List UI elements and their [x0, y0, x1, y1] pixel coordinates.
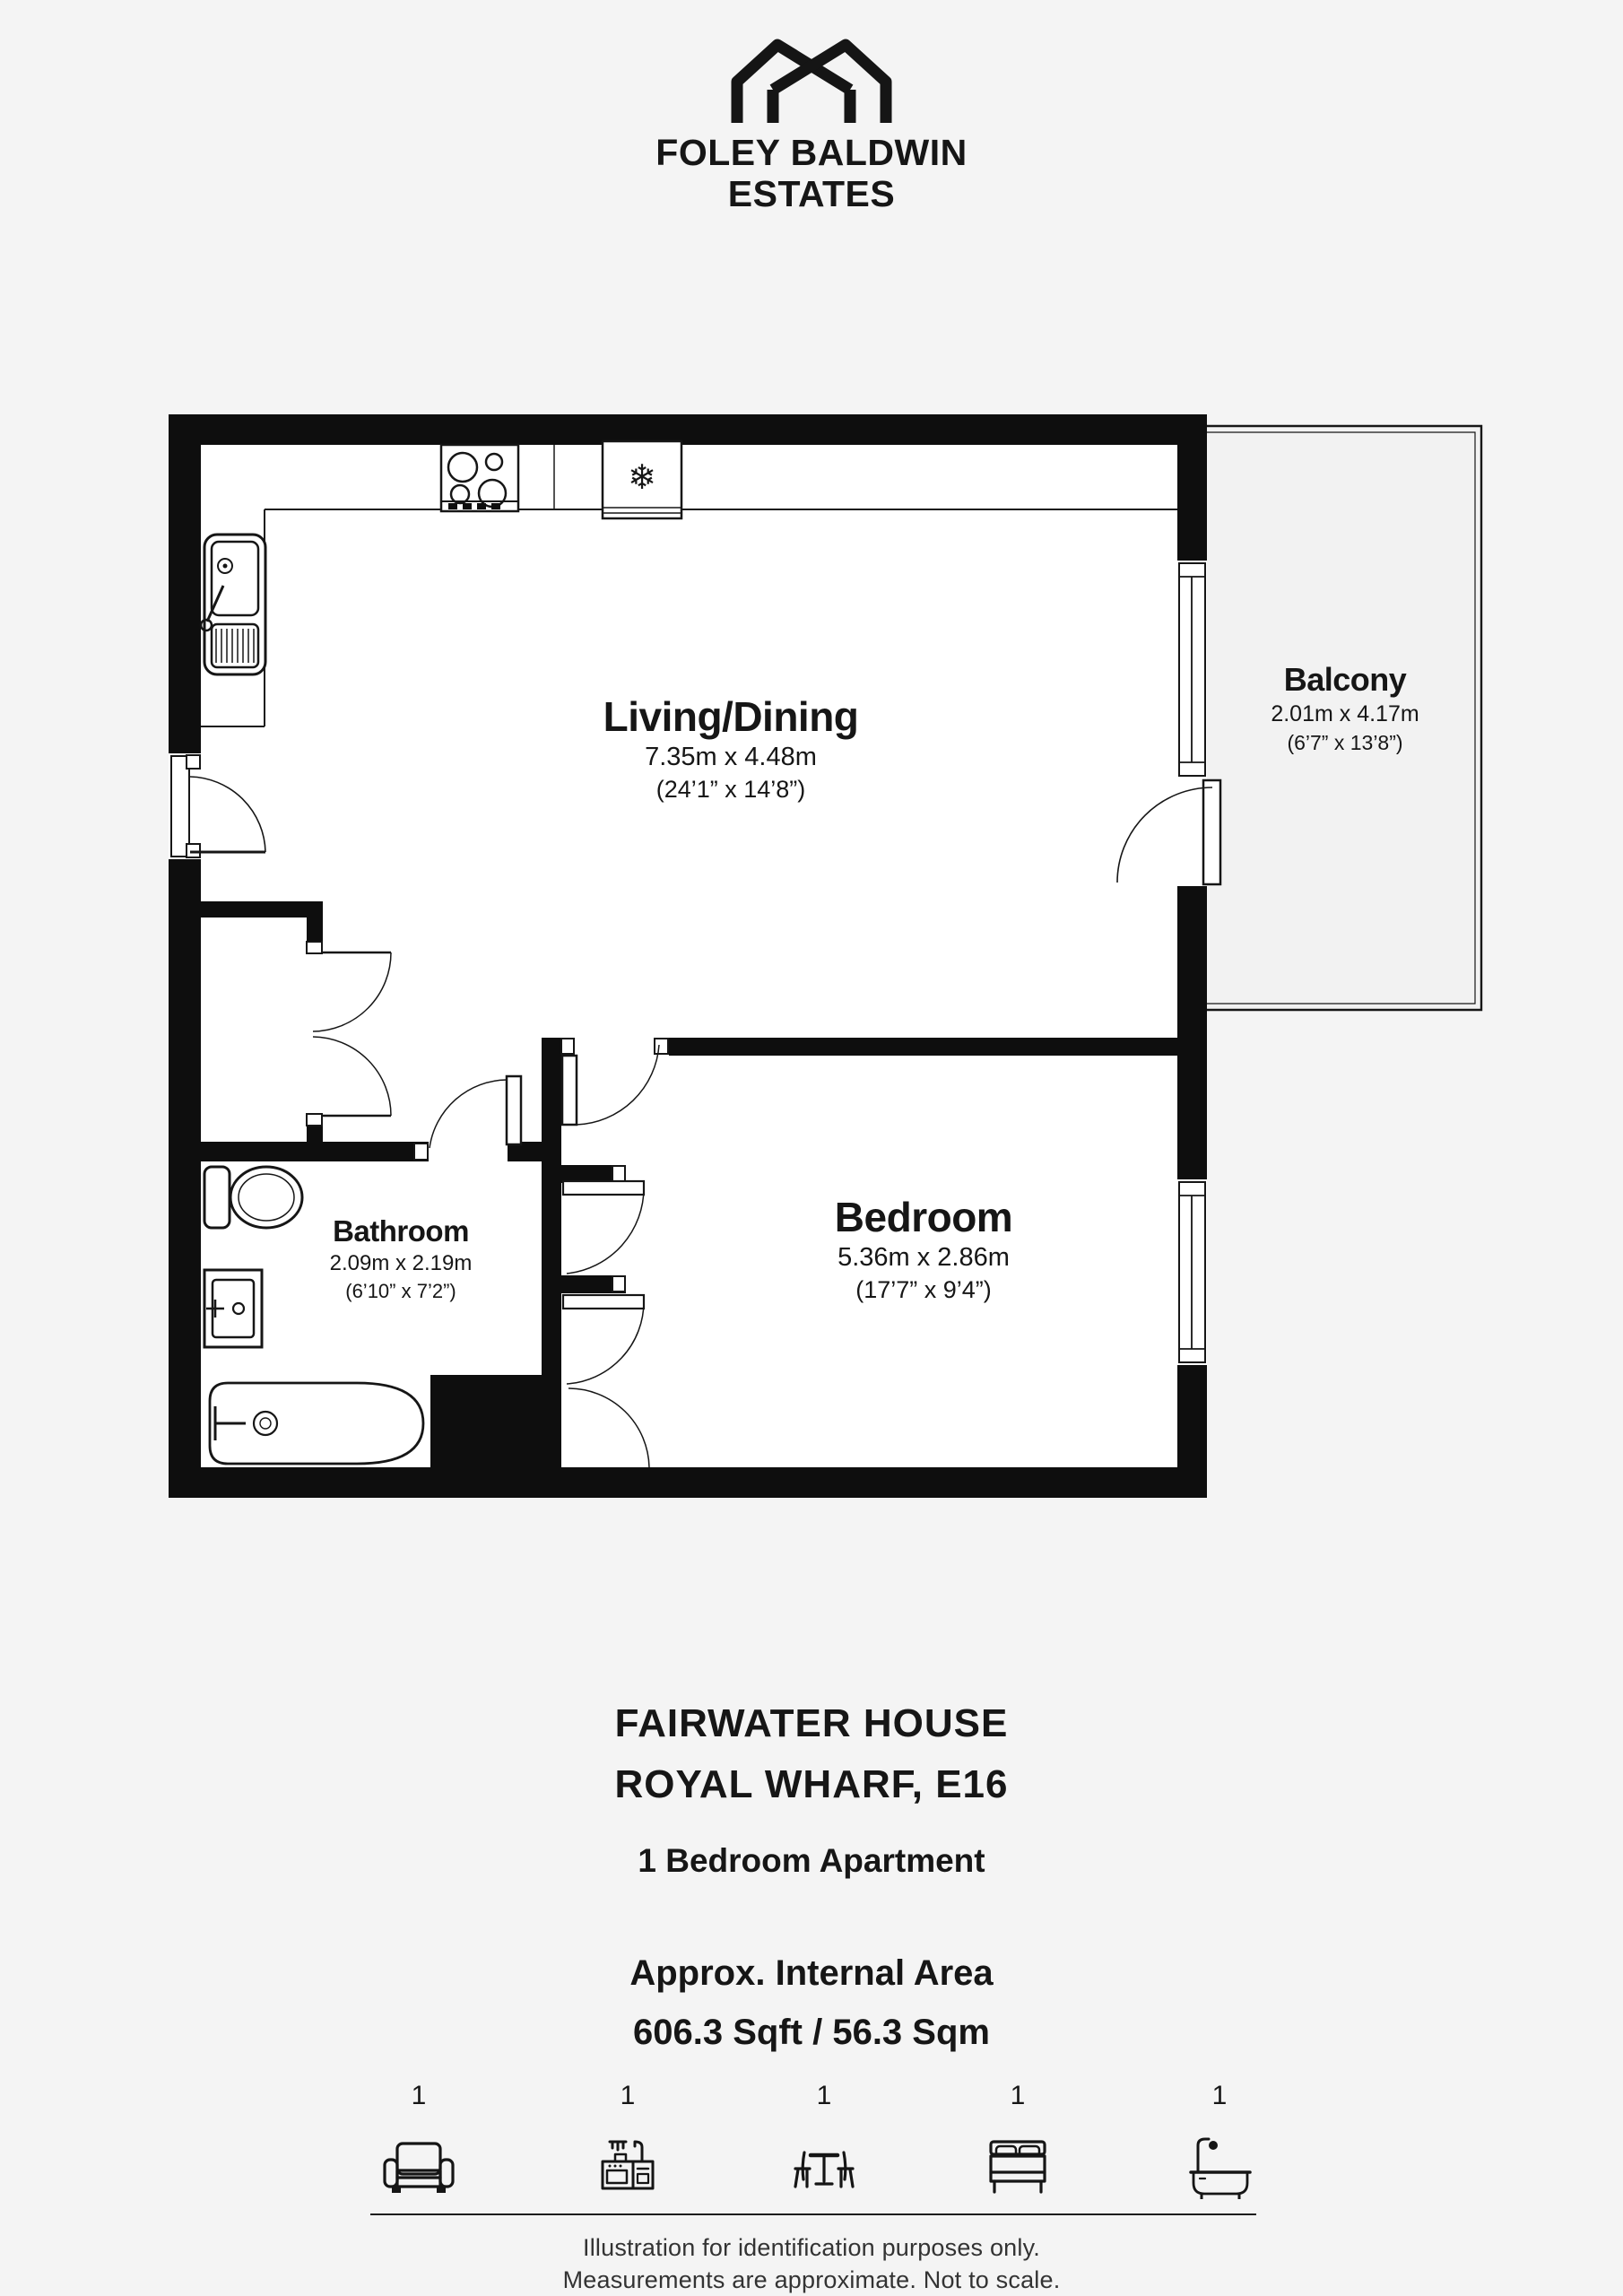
bathtub	[210, 1383, 423, 1464]
property-type: 1 Bedroom Apartment	[638, 1844, 985, 1877]
toilet	[204, 1167, 302, 1228]
bathroom-label: Bathroom 2.09m x 2.19m (6’10” x 7’2”)	[330, 1216, 473, 1301]
disclaimer-line2: Measurements are approximate. Not to sca…	[563, 2267, 1061, 2294]
floor-plan: ❄	[0, 0, 1623, 1623]
bed-count: 1	[1011, 2083, 1026, 2109]
wall-top	[169, 414, 1207, 445]
bathtub-icon	[1175, 2133, 1264, 2199]
bathtub-count: 1	[1212, 2083, 1228, 2109]
bedroom-label: Bedroom 5.36m x 2.86m (17’7” x 9’4”)	[835, 1196, 1012, 1302]
building-address: ROYAL WHARF, E16	[615, 1765, 1009, 1805]
internal-area-value: 606.3 Sqft / 56.3 Sqm	[633, 2014, 990, 2050]
living-window	[1179, 563, 1205, 776]
wall-cupboard-stub-b	[307, 1126, 323, 1142]
kitchen-sink	[201, 535, 265, 674]
footer-divider	[370, 2213, 1256, 2215]
kitchen-count: 1	[621, 2083, 636, 2109]
wall-bathroom-bedroom-block	[430, 1375, 561, 1467]
living-dining-label: Living/Dining 7.35m x 4.48m (24’1” x 14’…	[603, 696, 859, 802]
bedroom-door-leaf	[562, 1056, 577, 1125]
wall-left	[169, 414, 201, 1498]
wall-bathroom-top-left	[201, 1142, 429, 1161]
fridge-freezer: ❄	[603, 441, 681, 518]
disclaimer-line1: Illustration for identification purposes…	[583, 2235, 1040, 2262]
snowflake-icon: ❄	[628, 459, 656, 497]
apartment-interior	[201, 445, 1177, 1467]
kitchen-icon	[583, 2133, 673, 2199]
wall-hall-bedroom	[542, 1038, 561, 1378]
bedroom-window	[1179, 1182, 1205, 1362]
wall-bottom	[169, 1467, 1207, 1498]
dining-table-icon	[779, 2133, 869, 2199]
bed-icon	[973, 2133, 1063, 2199]
balcony-label: Balcony 2.01m x 4.17m (6’7” x 13’8”)	[1271, 664, 1419, 753]
building-name: FAIRWATER HOUSE	[615, 1704, 1009, 1744]
kitchen-hob	[441, 445, 518, 511]
internal-area-label: Approx. Internal Area	[629, 1955, 993, 1991]
armchair-icon	[374, 2133, 464, 2199]
armchair-count: 1	[412, 2083, 427, 2109]
wall-cupboard-top	[201, 901, 323, 918]
dining-table-count: 1	[817, 2083, 832, 2109]
bathroom-door-leaf	[507, 1076, 521, 1144]
bathroom-basin	[204, 1270, 262, 1347]
bedroom-door-opening	[561, 1038, 669, 1056]
wall-cupboard-stub-a	[307, 918, 323, 942]
